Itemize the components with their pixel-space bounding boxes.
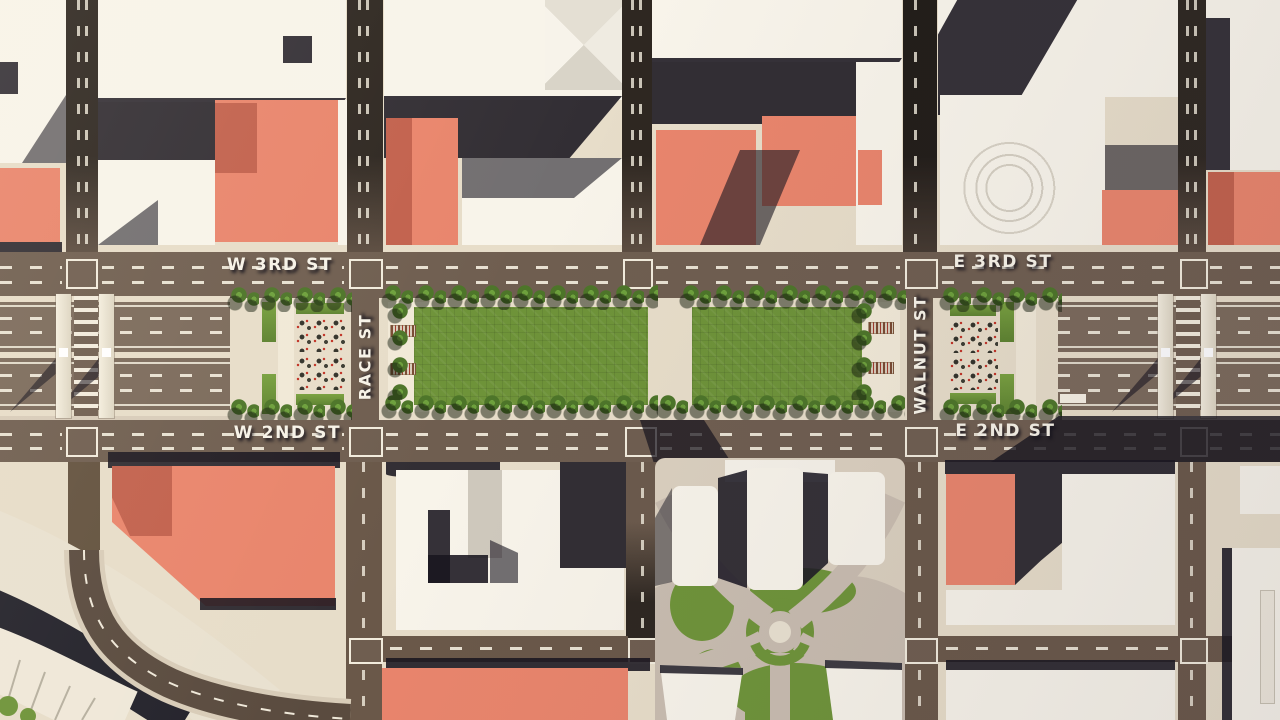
lane-marking xyxy=(0,447,62,450)
building-salmon xyxy=(0,168,60,242)
street-label-race: RACE ST xyxy=(356,314,375,401)
bridge-mast xyxy=(59,348,68,357)
building-white xyxy=(560,568,624,630)
stadium-and-ramp xyxy=(0,455,360,720)
lane-marking xyxy=(0,433,62,436)
lane-marking xyxy=(386,433,618,436)
crosswalk-overpass xyxy=(1176,296,1200,416)
lane-marking xyxy=(366,0,369,252)
lane-marking xyxy=(102,447,344,450)
lane-marking xyxy=(358,0,361,252)
street-north-right xyxy=(1178,0,1206,252)
building-salmon xyxy=(858,150,882,205)
cafe-tables xyxy=(950,357,998,390)
tree-row xyxy=(380,390,658,420)
building-shadow xyxy=(1105,145,1178,195)
intersection-box xyxy=(1180,259,1208,289)
lane-marking xyxy=(918,462,921,720)
lane-marking xyxy=(0,266,62,269)
cafe-tables xyxy=(296,318,346,352)
roof-dark xyxy=(283,36,312,63)
bridge-mast xyxy=(1204,348,1213,357)
building-shadow xyxy=(0,242,62,252)
street-walnut-north xyxy=(903,0,937,252)
lane-marking xyxy=(77,0,80,252)
lane-marking xyxy=(0,374,230,377)
cafe-tables xyxy=(296,356,346,390)
building-white xyxy=(1240,466,1280,514)
lane-marking xyxy=(390,647,620,650)
lane-marking xyxy=(0,281,62,284)
lane-marking xyxy=(1194,0,1197,252)
lane-marking xyxy=(0,317,230,320)
lane-marking xyxy=(1186,0,1189,252)
street-mid-north xyxy=(622,0,652,252)
lane-marking xyxy=(641,462,644,662)
lane-marking xyxy=(631,0,634,252)
building-salmon xyxy=(946,474,1015,585)
street-label-w-3rd: W 3RD ST xyxy=(200,254,360,276)
courtyard-dark xyxy=(428,555,488,583)
lane-marking xyxy=(946,647,1170,650)
roof-shadow xyxy=(945,460,1175,474)
building-white xyxy=(338,100,347,245)
bridge-mast xyxy=(1161,348,1170,357)
street-label-e-2nd: E 2ND ST xyxy=(928,420,1083,442)
building-white xyxy=(946,590,1175,625)
building-arc-roof xyxy=(940,95,1105,245)
central-plaza xyxy=(655,458,905,720)
bridge-mast xyxy=(102,348,111,357)
highway-edge xyxy=(0,296,230,302)
lane-marking xyxy=(1210,281,1280,284)
street-race-north xyxy=(347,0,383,252)
lane-marking xyxy=(0,331,230,334)
lane-line xyxy=(0,346,230,348)
street-label-walnut: WALNUT ST xyxy=(911,295,930,414)
lane-marking xyxy=(639,0,642,252)
tree-column xyxy=(850,300,878,400)
intersection-box xyxy=(905,638,938,664)
tree-row xyxy=(938,282,1062,312)
intersection-box xyxy=(66,427,98,457)
roof-detail xyxy=(1260,590,1275,704)
lane-marking xyxy=(1210,266,1280,269)
lane-marking xyxy=(362,462,365,720)
lane-marking xyxy=(386,447,618,450)
intersection-box xyxy=(66,259,98,289)
building-shadow xyxy=(560,462,626,568)
street-label-e-3rd: E 3RD ST xyxy=(928,251,1078,273)
lane-line xyxy=(0,362,230,364)
crosswalk-overpass xyxy=(74,296,98,416)
building-salmon xyxy=(1102,190,1178,245)
planter-white xyxy=(1060,394,1086,403)
tree-row xyxy=(226,282,352,312)
lane-line xyxy=(0,404,230,406)
lane-line xyxy=(0,305,230,307)
intersection-box xyxy=(1180,638,1208,664)
aerial-city-render: W 3RD ST E 3RD ST W 2ND ST E 2ND ST RACE… xyxy=(0,0,1280,720)
cafe-tables xyxy=(950,320,998,353)
tree-row xyxy=(380,280,658,310)
lane-marking xyxy=(656,266,900,269)
building-shadow xyxy=(0,62,18,94)
lane-marking xyxy=(1190,462,1193,720)
lane-marking xyxy=(85,0,88,252)
highway-edge xyxy=(0,410,230,416)
lane-marking xyxy=(914,0,917,252)
building-shadow xyxy=(1206,18,1230,170)
building-salmon-shaded xyxy=(386,118,412,245)
street-label-w-2nd: W 2ND ST xyxy=(205,422,370,444)
lane-marking xyxy=(386,266,618,269)
building-salmon-shaded xyxy=(1208,172,1234,245)
highway-median xyxy=(0,352,230,358)
building-salmon xyxy=(382,668,628,720)
tree-column xyxy=(386,300,414,400)
building-white xyxy=(946,670,1175,720)
building-hip-roof xyxy=(545,0,622,90)
street-north-left xyxy=(66,0,98,252)
building-salmon-shaded xyxy=(215,103,257,173)
building-white xyxy=(652,0,902,62)
